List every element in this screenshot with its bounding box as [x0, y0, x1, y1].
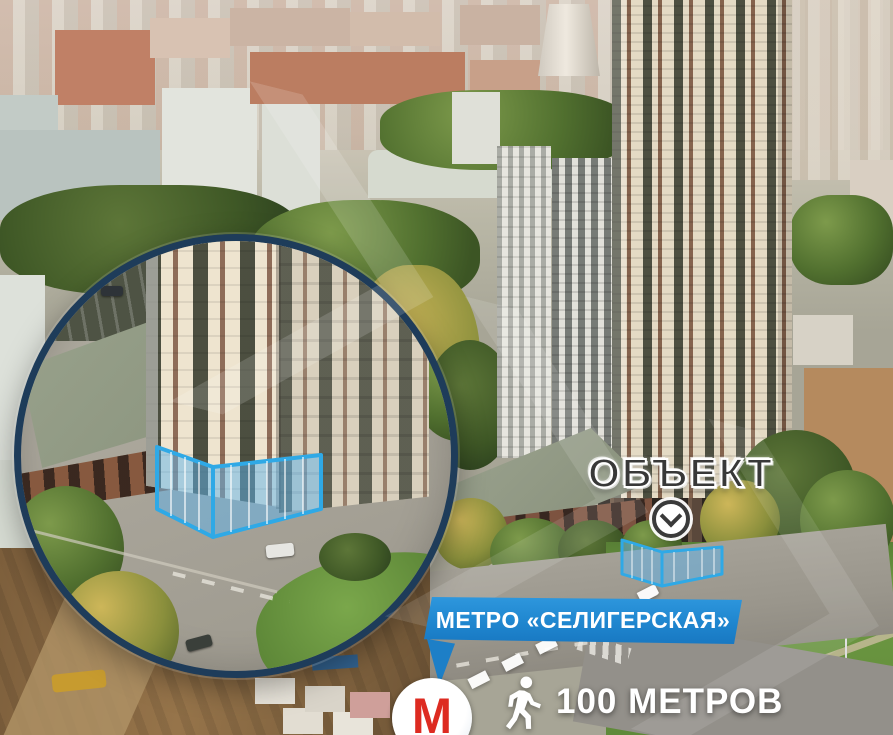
- material-pallets: [255, 678, 295, 704]
- trees: [790, 195, 893, 285]
- city-block: [230, 8, 350, 46]
- city-block: [55, 30, 155, 105]
- secondary-tower: [452, 92, 500, 164]
- city-block: [793, 315, 853, 365]
- metro-banner-label: МЕТРО «СЕЛИГЕРСКАЯ»: [436, 607, 731, 634]
- car: [185, 634, 213, 652]
- car: [101, 286, 123, 296]
- road-lane-marking: [172, 572, 289, 605]
- city-block: [350, 12, 440, 46]
- highlighted-storefront-main: [598, 528, 738, 604]
- highlighted-storefront-inset: [121, 421, 331, 551]
- cityscape-haze: [790, 0, 893, 180]
- chevron-down-circle-icon: [652, 500, 690, 538]
- walking-person-icon: [502, 676, 548, 732]
- city-block: [150, 18, 230, 58]
- object-label: ОБЪЕКТ: [588, 450, 774, 497]
- car: [61, 271, 83, 281]
- distance-label: 100 МЕТРОВ: [556, 682, 783, 722]
- metro-station-banner: МЕТРО «СЕЛИГЕРСКАЯ»: [424, 597, 742, 644]
- metro-logo-letter: М: [412, 687, 452, 735]
- city-block: [460, 5, 540, 45]
- aerial-photo-scene: ОБЪЕКТ МЕТРО «СЕЛИГЕРСКАЯ» М 100 МЕТРОВ: [0, 0, 893, 735]
